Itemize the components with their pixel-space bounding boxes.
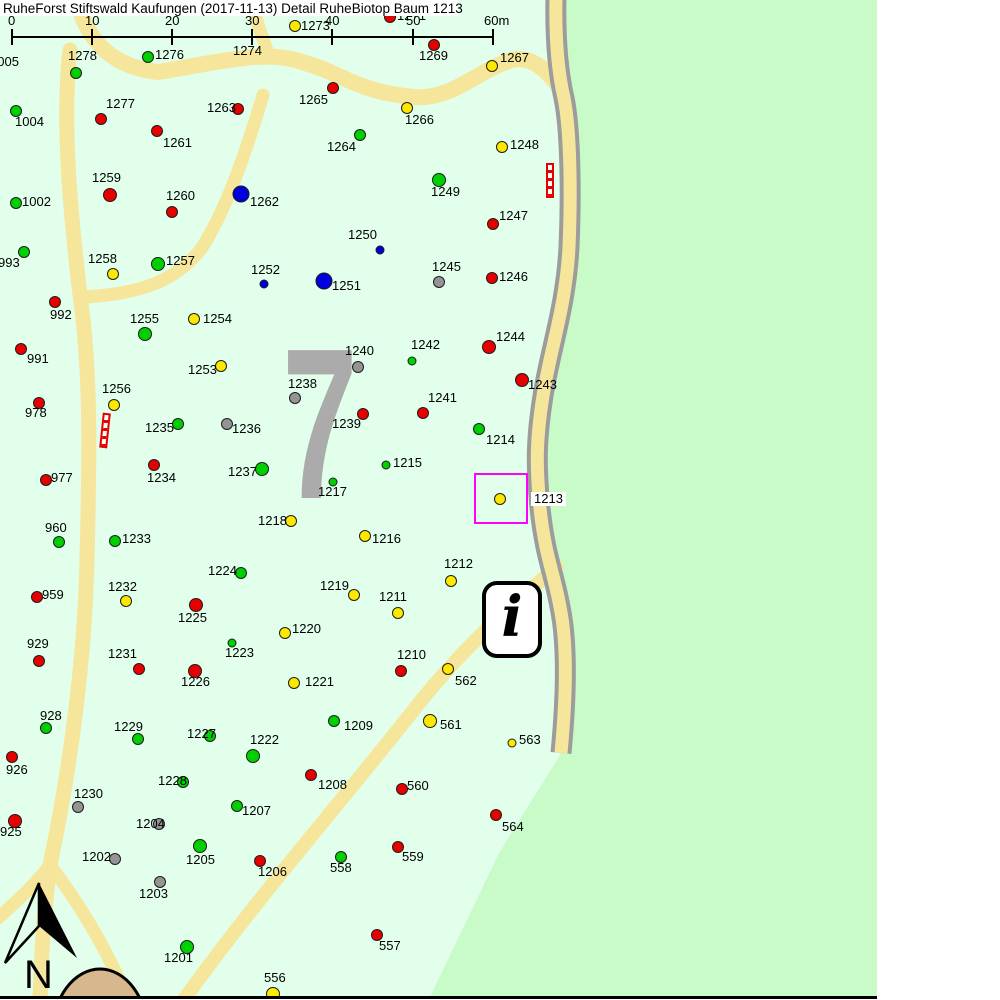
tree-label-560: 560	[407, 779, 429, 793]
tree-dot-1214[interactable]	[473, 423, 485, 435]
tree-dot-1247[interactable]	[487, 218, 499, 230]
tree-label-1201: 1201	[164, 951, 193, 965]
tree-dot-564[interactable]	[490, 809, 502, 821]
tree-label-564: 564	[502, 820, 524, 834]
tree-label-1241: 1241	[428, 391, 457, 405]
tree-dot-1216[interactable]	[359, 530, 371, 542]
tree-dot-1229[interactable]	[132, 733, 144, 745]
tree-label-1214: 1214	[486, 433, 515, 447]
tree-label-1222: 1222	[250, 733, 279, 747]
tree-label-1260: 1260	[166, 189, 195, 203]
terrain-and-roads: 7	[0, 0, 877, 997]
tree-dot-1241[interactable]	[417, 407, 429, 419]
tree-label-1267: 1267	[500, 51, 529, 65]
tree-dot-1261[interactable]	[151, 125, 163, 137]
tree-label-1265: 1265	[299, 93, 328, 107]
tree-dot-1255[interactable]	[138, 327, 152, 341]
tree-label-977: 977	[51, 471, 73, 485]
tree-label-1218: 1218	[258, 514, 287, 528]
tree-label-1243: 1243	[528, 378, 557, 392]
tree-label-1240: 1240	[345, 344, 374, 358]
tree-label-991: 991	[27, 352, 49, 366]
tree-dot-1252[interactable]	[260, 280, 269, 289]
tree-label-557: 557	[379, 939, 401, 953]
tree-label-1239: 1239	[332, 417, 361, 431]
scale-tick-50	[412, 29, 414, 45]
tree-dot-1262[interactable]	[233, 186, 250, 203]
tree-label-1213: 1213	[531, 492, 566, 506]
tree-label-1256: 1256	[102, 382, 131, 396]
tree-dot-1242[interactable]	[408, 357, 417, 366]
tree-label-1216: 1216	[372, 532, 401, 546]
tree-label-1004: 1004	[15, 115, 44, 129]
tree-label-563: 563	[519, 733, 541, 747]
tree-label-1246: 1246	[499, 270, 528, 284]
tree-dot-1230[interactable]	[72, 801, 84, 813]
tree-label-1231: 1231	[108, 647, 137, 661]
tree-label-1261: 1261	[163, 136, 192, 150]
scale-tick-10	[91, 29, 93, 45]
info-point-icon[interactable]: i	[482, 581, 542, 658]
tree-dot-1260[interactable]	[166, 206, 178, 218]
tree-dot-1259[interactable]	[103, 188, 117, 202]
tree-label-1255: 1255	[130, 312, 159, 326]
tree-label-1266: 1266	[405, 113, 434, 127]
scale-label-60m: 60m	[484, 13, 509, 28]
tree-dot-1277[interactable]	[95, 113, 107, 125]
tree-label-559: 559	[402, 850, 424, 864]
tree-dot-1258[interactable]	[107, 268, 119, 280]
tree-dot-1215[interactable]	[382, 461, 391, 470]
tree-dot-1002[interactable]	[10, 197, 22, 209]
scale-tick-40	[331, 29, 333, 45]
tree-dot-929[interactable]	[33, 655, 45, 667]
tree-label-1237: 1237	[228, 465, 257, 479]
tree-label-929: 929	[27, 637, 49, 651]
tree-dot-1205[interactable]	[193, 839, 207, 853]
tree-dot-1221[interactable]	[288, 677, 300, 689]
tree-label-1209: 1209	[344, 719, 373, 733]
tree-label-1263: 1263	[207, 101, 236, 115]
tree-label-1225: 1225	[178, 611, 207, 625]
tree-dot-563[interactable]	[508, 739, 517, 748]
tree-dot-1254[interactable]	[188, 313, 200, 325]
map-title: RuheForst Stiftswald Kaufungen (2017-11-…	[3, 1, 463, 16]
info-icon-glyph: i	[501, 584, 522, 650]
tan-mound	[52, 969, 148, 997]
tree-dot-1250[interactable]	[376, 246, 385, 255]
tree-label-1233: 1233	[122, 532, 151, 546]
tree-label-992: 992	[50, 308, 72, 322]
tree-dot-960[interactable]	[53, 536, 65, 548]
tree-label-1207: 1207	[242, 804, 271, 818]
tree-label-1262: 1262	[250, 195, 279, 209]
tree-label-1259: 1259	[92, 171, 121, 185]
tree-label-1232: 1232	[108, 580, 137, 594]
tree-label-1204: 1204	[136, 817, 165, 831]
tree-label-1230: 1230	[74, 787, 103, 801]
tree-label-1002: 1002	[22, 195, 51, 209]
tree-label-1229: 1229	[114, 720, 143, 734]
tree-dot-1238[interactable]	[289, 392, 301, 404]
tree-label-1249: 1249	[431, 185, 460, 199]
tree-label-1257: 1257	[166, 254, 195, 268]
tree-dot-1248[interactable]	[496, 141, 508, 153]
tree-label-1211: 1211	[379, 590, 407, 604]
tree-label-558: 558	[330, 861, 352, 875]
tree-dot-1257[interactable]	[151, 257, 165, 271]
tree-label-1274: 1274	[233, 44, 262, 58]
tree-label-1005: 1005	[0, 55, 19, 69]
tree-label-1228: 1228	[158, 774, 187, 788]
tree-label-1254: 1254	[203, 312, 232, 326]
tree-label-1264: 1264	[327, 140, 356, 154]
scale-tick-30	[251, 29, 253, 45]
scale-tick-20	[171, 29, 173, 45]
tree-dot-1219[interactable]	[348, 589, 360, 601]
tree-label-561: 561	[440, 718, 462, 732]
tree-label-1252: 1252	[251, 263, 280, 277]
tree-label-1224: 1224	[208, 564, 237, 578]
tree-label-1219: 1219	[320, 579, 349, 593]
tree-dot-1220[interactable]	[279, 627, 291, 639]
tree-dot-991[interactable]	[15, 343, 27, 355]
tree-label-1253: 1253	[188, 363, 217, 377]
tree-label-1215: 1215	[393, 456, 422, 470]
map-bottom-border	[0, 996, 877, 999]
tree-dot-1246[interactable]	[486, 272, 498, 284]
tree-dot-1251[interactable]	[316, 273, 333, 290]
tree-dot-1211[interactable]	[392, 607, 404, 619]
tree-label-926: 926	[6, 763, 28, 777]
tree-label-1250: 1250	[348, 228, 377, 242]
tree-dot-1233[interactable]	[109, 535, 121, 547]
tree-label-978: 978	[25, 406, 47, 420]
tree-dot-1208[interactable]	[305, 769, 317, 781]
tree-label-1277: 1277	[106, 97, 135, 111]
tree-dot-1273[interactable]	[289, 20, 301, 32]
tree-label-1212: 1212	[444, 557, 473, 571]
tree-label-1208: 1208	[318, 778, 347, 792]
tree-dot-1210[interactable]	[395, 665, 407, 677]
tree-label-556: 556	[264, 971, 286, 985]
tree-label-1206: 1206	[258, 865, 287, 879]
tree-dot-1213[interactable]	[494, 493, 506, 505]
tree-label-1242: 1242	[411, 338, 440, 352]
tree-dot-1265[interactable]	[327, 82, 339, 94]
tree-dot-1245[interactable]	[433, 276, 445, 288]
tree-dot-993[interactable]	[18, 246, 30, 258]
scale-tick-60m	[492, 29, 494, 45]
tree-label-1220: 1220	[292, 622, 321, 636]
tree-label-1221: 1221	[305, 675, 334, 689]
tree-label-1248: 1248	[510, 138, 539, 152]
screenshot-stage: 7 12731271126912671278127610041002127712…	[0, 0, 1000, 1000]
tree-label-1227: 1227	[187, 727, 216, 741]
tree-dot-1278[interactable]	[70, 67, 82, 79]
tree-label-1251: 1251	[332, 279, 361, 293]
map-canvas[interactable]: 7 12731271126912671278127610041002127712…	[0, 0, 877, 997]
tree-label-1238: 1238	[288, 377, 317, 391]
tree-label-993: 993	[0, 256, 20, 270]
tree-label-1244: 1244	[496, 330, 525, 344]
tree-dot-561[interactable]	[423, 714, 437, 728]
tree-dot-1267[interactable]	[486, 60, 498, 72]
tree-label-928: 928	[40, 709, 62, 723]
tree-label-925: 925	[0, 825, 22, 839]
tree-label-1234: 1234	[147, 471, 176, 485]
tree-dot-1243[interactable]	[515, 373, 529, 387]
tree-dot-1244[interactable]	[482, 340, 496, 354]
tree-label-1217: 1217	[318, 485, 347, 499]
tree-label-1210: 1210	[397, 648, 426, 662]
tree-label-1226: 1226	[181, 675, 210, 689]
tree-label-1235: 1235	[145, 421, 174, 435]
tree-label-1276: 1276	[155, 48, 184, 62]
tree-dot-1276[interactable]	[142, 51, 154, 63]
tree-label-1236: 1236	[232, 422, 261, 436]
tree-dot-562[interactable]	[442, 663, 454, 675]
tree-dot-1222[interactable]	[246, 749, 260, 763]
tree-label-960: 960	[45, 521, 67, 535]
ladder-marker-east	[546, 163, 554, 198]
scale-tick-0	[11, 29, 13, 45]
tree-label-1223: 1223	[225, 646, 254, 660]
tree-label-959: 959	[42, 588, 64, 602]
tree-label-1258: 1258	[88, 252, 117, 266]
tree-dot-1209[interactable]	[328, 715, 340, 727]
tree-label-1269: 1269	[419, 49, 448, 63]
tree-dot-1256[interactable]	[108, 399, 120, 411]
tree-dot-928[interactable]	[40, 722, 52, 734]
tree-label-1202: 1202	[82, 850, 111, 864]
tree-label-1245: 1245	[432, 260, 461, 274]
tree-dot-1237[interactable]	[255, 462, 269, 476]
tree-dot-1232[interactable]	[120, 595, 132, 607]
tree-label-562: 562	[455, 674, 477, 688]
compass-n-label: N	[24, 953, 53, 997]
tree-dot-1240[interactable]	[352, 361, 364, 373]
tree-label-1203: 1203	[139, 887, 168, 901]
tree-label-1205: 1205	[186, 853, 215, 867]
tree-dot-1231[interactable]	[133, 663, 145, 675]
tree-label-1247: 1247	[499, 209, 528, 223]
tree-dot-1212[interactable]	[445, 575, 457, 587]
tree-label-1278: 1278	[68, 49, 97, 63]
